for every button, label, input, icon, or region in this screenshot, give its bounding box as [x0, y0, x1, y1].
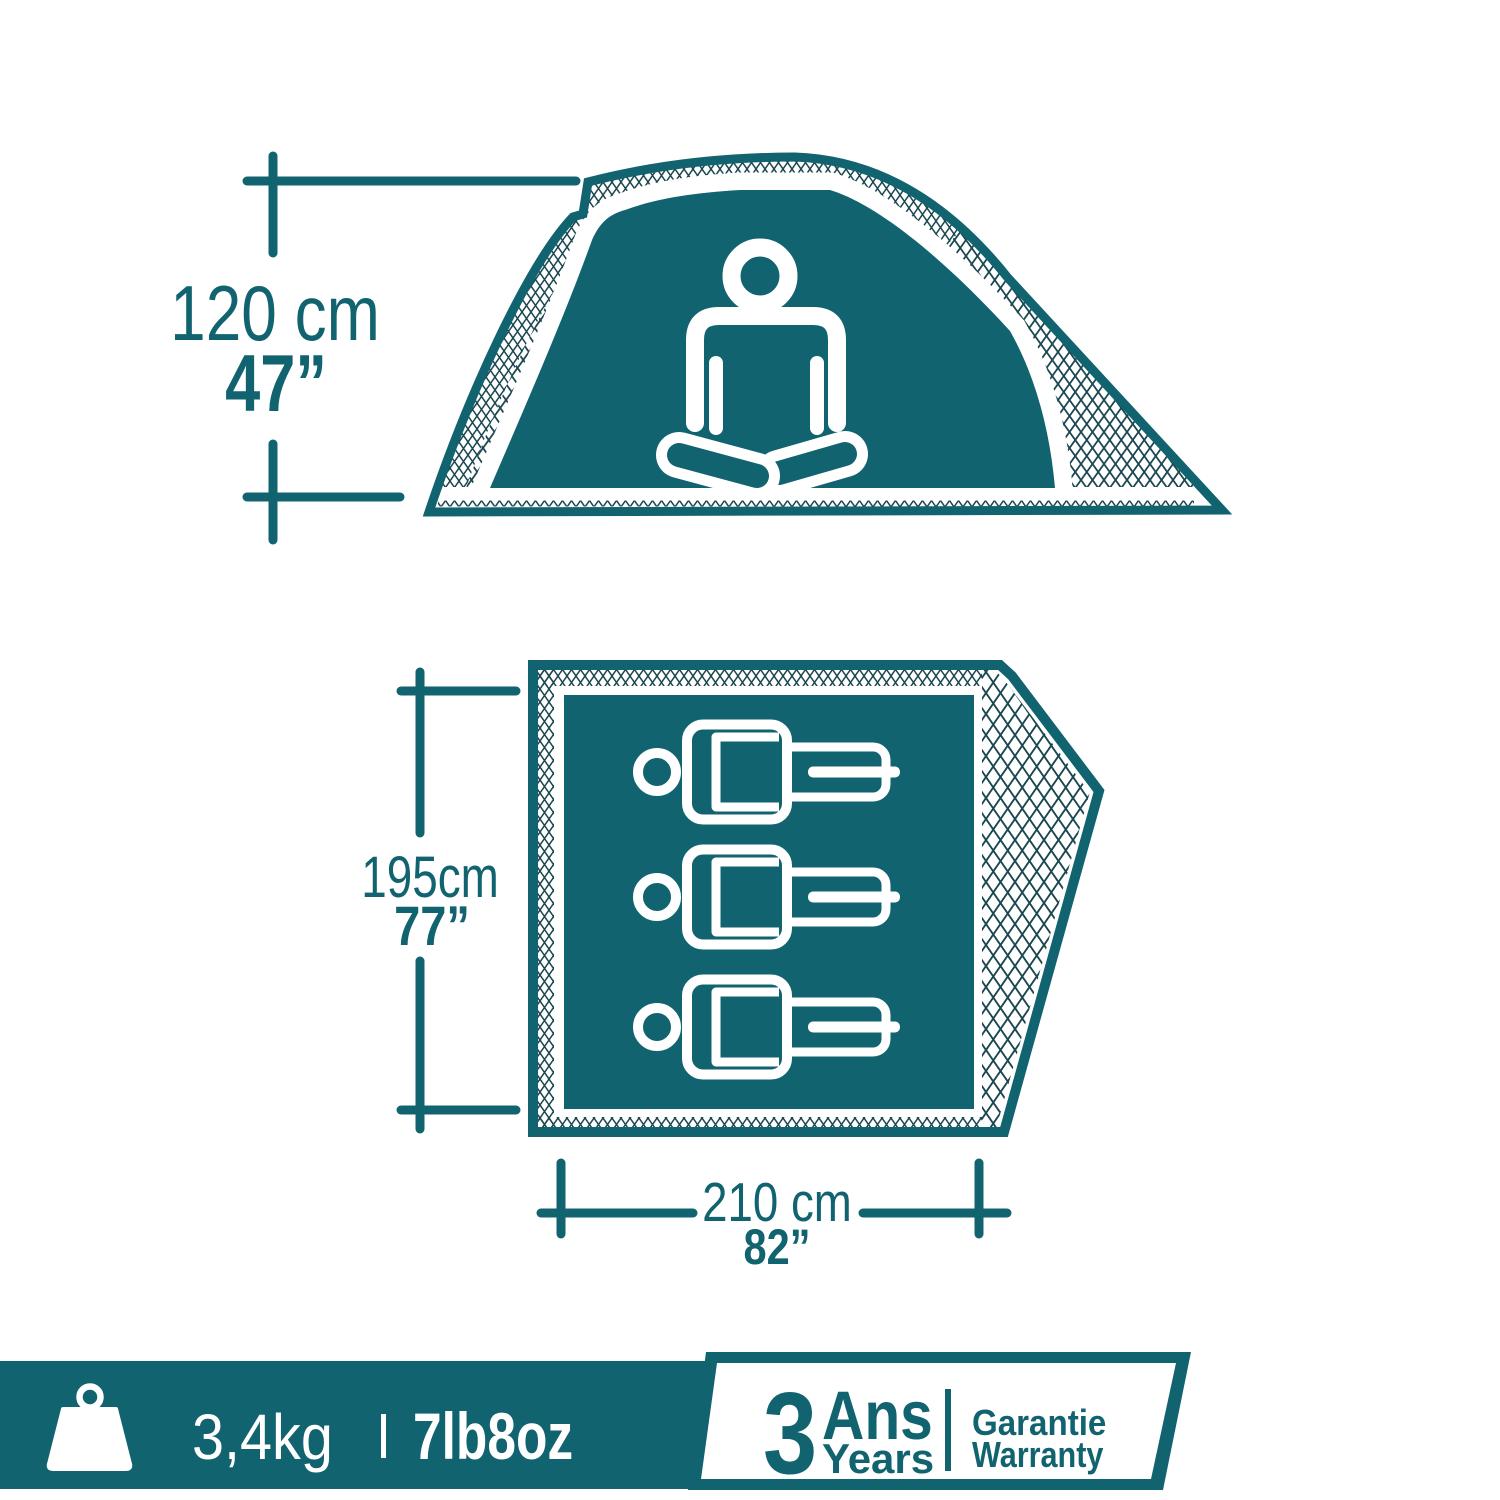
svg-text:82”: 82”: [744, 1218, 811, 1275]
svg-text:Warranty: Warranty: [972, 1436, 1104, 1476]
svg-text:47”: 47”: [225, 339, 327, 429]
svg-text:3,4kg: 3,4kg: [192, 1401, 333, 1472]
svg-text:Years: Years: [822, 1435, 934, 1482]
svg-text:7lb8oz: 7lb8oz: [413, 1399, 573, 1474]
svg-text:77”: 77”: [394, 894, 470, 957]
svg-text:3: 3: [763, 1368, 817, 1498]
